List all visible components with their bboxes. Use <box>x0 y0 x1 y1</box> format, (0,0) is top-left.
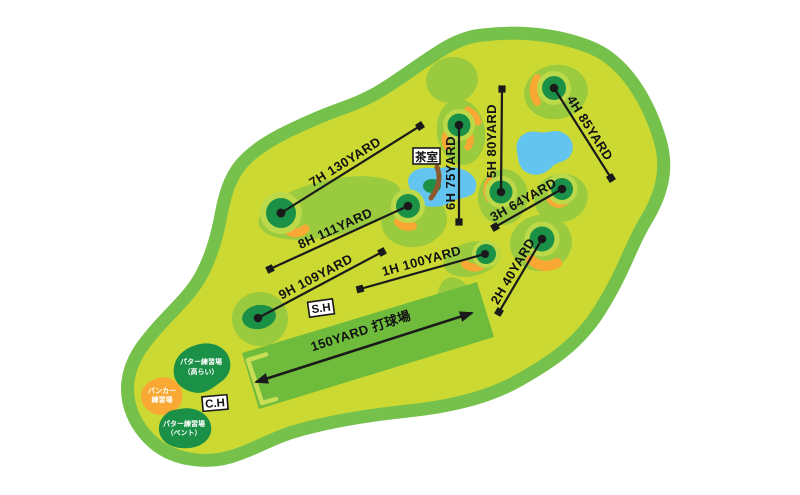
club-house: C.H <box>202 395 228 412</box>
putter-practice-bent-area <box>159 408 211 448</box>
club-house-label: C.H <box>205 397 226 411</box>
hole-dot-9h <box>254 314 263 323</box>
bunker-4h <box>534 78 538 102</box>
start-house: S.H <box>308 299 335 317</box>
hole-label-6h: 6H 75YARD <box>443 136 458 210</box>
hole-dot-1h <box>481 250 489 258</box>
hole-dot-4h <box>550 84 559 93</box>
hole-dot-6h <box>455 121 464 130</box>
bunker-practice-label-line2: 練習場 <box>152 395 173 404</box>
hole-dot-3h <box>558 185 567 194</box>
course-map-svg: 150YARD 打球場 <box>0 0 800 495</box>
tee-marker-5h <box>498 85 505 92</box>
putter-practice-korai-label-line2: （高らい） <box>184 367 219 376</box>
bunker-2h <box>531 260 557 266</box>
hole-line-5h <box>501 89 502 192</box>
hole-dot-8h <box>404 202 413 211</box>
putter-practice-bent-label-line2: （ベント） <box>167 429 202 437</box>
hole-dot-2h <box>538 235 547 244</box>
golf-course-map: 150YARD 打球場 <box>0 0 800 495</box>
hole-dot-5h <box>497 188 506 197</box>
tee-marker-6h <box>455 218 462 225</box>
hole-dot-7h <box>277 209 286 218</box>
tea-room: 茶室 <box>413 148 440 164</box>
putter-practice-korai-label-line1: パター練習場 <box>180 357 222 366</box>
bunker-practice-label-line1: バンカー <box>148 387 176 395</box>
hole-label-5h: 5H 80YARD <box>484 104 499 178</box>
tea-room-label: 茶室 <box>414 150 438 164</box>
putter-practice-bent-label-line1: パター練習場 <box>163 419 205 428</box>
